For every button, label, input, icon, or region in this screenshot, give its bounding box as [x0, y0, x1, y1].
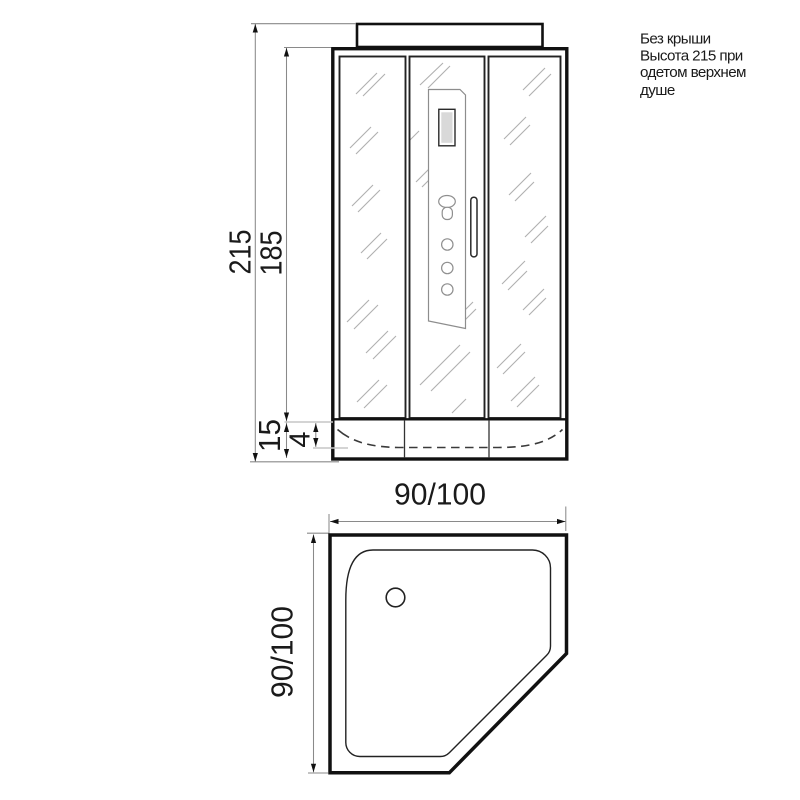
svg-text:4: 4: [285, 431, 317, 447]
svg-text:90/100: 90/100: [394, 477, 486, 512]
svg-text:15: 15: [252, 419, 287, 452]
svg-text:душе: душе: [640, 82, 675, 99]
svg-text:одетом верхнем: одетом верхнем: [640, 64, 746, 81]
svg-text:Без крыши: Без крыши: [640, 30, 711, 47]
svg-text:90/100: 90/100: [265, 606, 300, 698]
svg-text:Высота 215 при: Высота 215 при: [640, 47, 743, 64]
svg-text:215: 215: [223, 230, 258, 275]
svg-text:185: 185: [254, 231, 289, 276]
